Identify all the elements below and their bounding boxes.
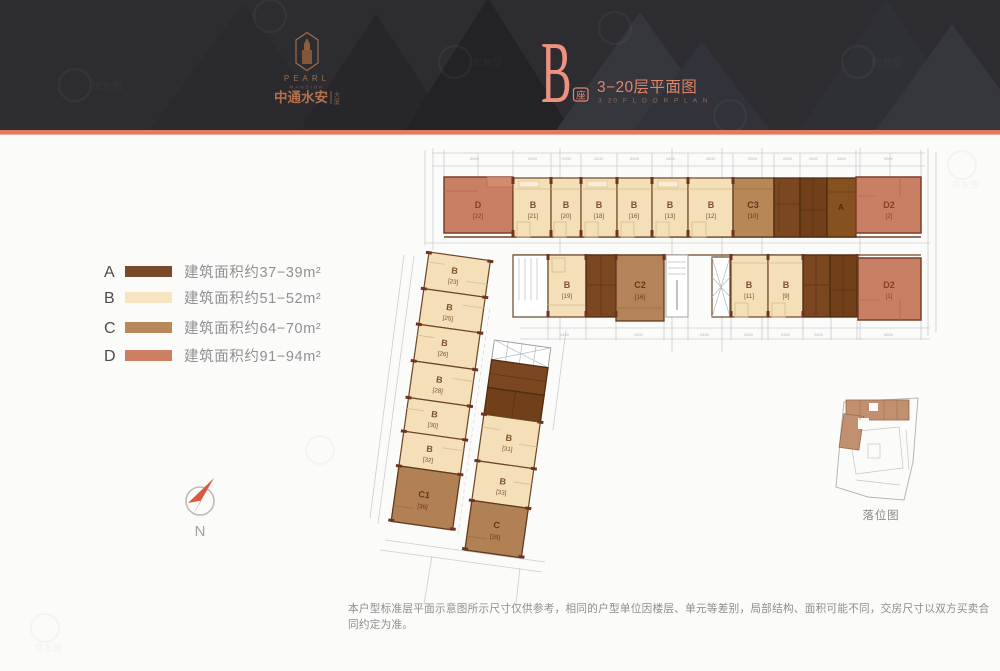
svg-text:A: A (104, 264, 115, 281)
svg-text:[18]: [18] (594, 213, 605, 220)
svg-text:2600: 2600 (809, 156, 819, 161)
svg-text:2900: 2900 (562, 156, 572, 161)
svg-text:[28]: [28] (432, 387, 443, 395)
svg-text:5800: 5800 (884, 332, 894, 337)
svg-text:[31]: [31] (502, 445, 513, 453)
svg-text:[10]: [10] (748, 213, 759, 220)
svg-text:[16]: [16] (635, 294, 646, 301)
svg-text:[16]: [16] (629, 213, 640, 220)
svg-text:落位图: 落位图 (863, 508, 900, 522)
svg-text:B: B (783, 280, 790, 290)
svg-text:B: B (631, 200, 638, 210)
svg-text:厦: 厦 (334, 99, 340, 106)
svg-text:3500: 3500 (744, 332, 754, 337)
svg-text:B: B (746, 280, 753, 290)
svg-text:[26]: [26] (437, 350, 448, 358)
svg-text:[36]: [36] (417, 503, 428, 511)
svg-text:B: B (564, 280, 571, 290)
svg-text:B: B (667, 200, 674, 210)
svg-text:[2]: [2] (886, 213, 893, 220)
svg-text:建筑面积约51−52m²: 建筑面积约51−52m² (184, 290, 321, 307)
svg-text:N: N (195, 523, 206, 540)
svg-text:房友图: 房友图 (472, 56, 502, 69)
svg-text:3300: 3300 (781, 332, 791, 337)
svg-text:[20]: [20] (561, 213, 572, 220)
svg-text:3400: 3400 (560, 332, 570, 337)
svg-text:建筑面积约91−94m²: 建筑面积约91−94m² (184, 348, 321, 365)
svg-text:D: D (104, 348, 116, 365)
svg-text:房友图: 房友图 (952, 179, 979, 190)
svg-text:3400: 3400 (666, 156, 676, 161)
svg-text:[9]: [9] (783, 293, 790, 300)
svg-text:[12]: [12] (706, 213, 717, 220)
svg-text:[23]: [23] (447, 278, 458, 286)
svg-text:[21]: [21] (528, 213, 539, 220)
svg-text:3·20 F L O O R P L A N: 3·20 F L O O R P L A N (598, 98, 709, 105)
svg-text:[13]: [13] (665, 213, 676, 220)
svg-text:D2: D2 (883, 280, 895, 290)
svg-text:[19]: [19] (562, 293, 573, 300)
svg-text:3400: 3400 (594, 156, 604, 161)
svg-text:A: A (838, 202, 844, 212)
svg-text:B: B (104, 290, 115, 307)
svg-text:B: B (530, 200, 537, 210)
svg-text:C2: C2 (634, 280, 646, 290)
svg-text:建筑面积约37−39m²: 建筑面积约37−39m² (184, 264, 321, 281)
svg-text:4300: 4300 (634, 332, 644, 337)
svg-text:C1: C1 (418, 489, 431, 501)
svg-text:B: B (563, 200, 570, 210)
svg-text:[35]: [35] (489, 533, 500, 541)
svg-text:MANSION: MANSION (289, 85, 324, 90)
svg-text:C3: C3 (747, 200, 759, 210)
svg-text:房友图: 房友图 (92, 80, 122, 93)
svg-text:3600: 3600 (470, 156, 480, 161)
svg-text:同约定为准。: 同约定为准。 (348, 618, 413, 631)
svg-text:房友图: 房友图 (35, 642, 62, 653)
svg-text:B: B (541, 25, 572, 122)
svg-text:D: D (475, 200, 482, 210)
svg-text:B: B (596, 200, 603, 210)
svg-text:5900: 5900 (884, 156, 894, 161)
svg-text:2400: 2400 (700, 332, 710, 337)
svg-text:大: 大 (334, 91, 340, 99)
svg-text:2800: 2800 (837, 156, 847, 161)
svg-text:2600: 2600 (783, 156, 793, 161)
svg-text:中通水安: 中通水安 (274, 89, 328, 105)
svg-text:C: C (104, 320, 116, 337)
svg-text:3400: 3400 (528, 156, 538, 161)
svg-text:建筑面积约64−70m²: 建筑面积约64−70m² (184, 320, 321, 337)
svg-text:B: B (708, 200, 715, 210)
svg-text:[32]: [32] (422, 456, 433, 464)
svg-text:[25]: [25] (442, 315, 453, 323)
svg-text:3900: 3900 (748, 156, 758, 161)
svg-text:房友图: 房友图 (872, 56, 902, 69)
svg-text:3−20层平面图: 3−20层平面图 (597, 79, 697, 96)
svg-text:座: 座 (576, 89, 586, 101)
svg-text:[30]: [30] (427, 422, 438, 430)
svg-text:[33]: [33] (496, 489, 507, 497)
svg-text:PEARL: PEARL (284, 74, 330, 83)
svg-text:2600: 2600 (814, 332, 824, 337)
svg-text:D2: D2 (883, 200, 895, 210)
svg-text:3400: 3400 (630, 156, 640, 161)
svg-text:[11]: [11] (744, 293, 754, 300)
svg-text:[22]: [22] (473, 213, 484, 220)
svg-text:[1]: [1] (886, 293, 893, 300)
svg-text:本户型标准层平面示意图所示尺寸仅供参考，相同的户型单位因楼层: 本户型标准层平面示意图所示尺寸仅供参考，相同的户型单位因楼层、单元等差别，局部结… (348, 602, 990, 615)
svg-text:3800: 3800 (706, 156, 716, 161)
